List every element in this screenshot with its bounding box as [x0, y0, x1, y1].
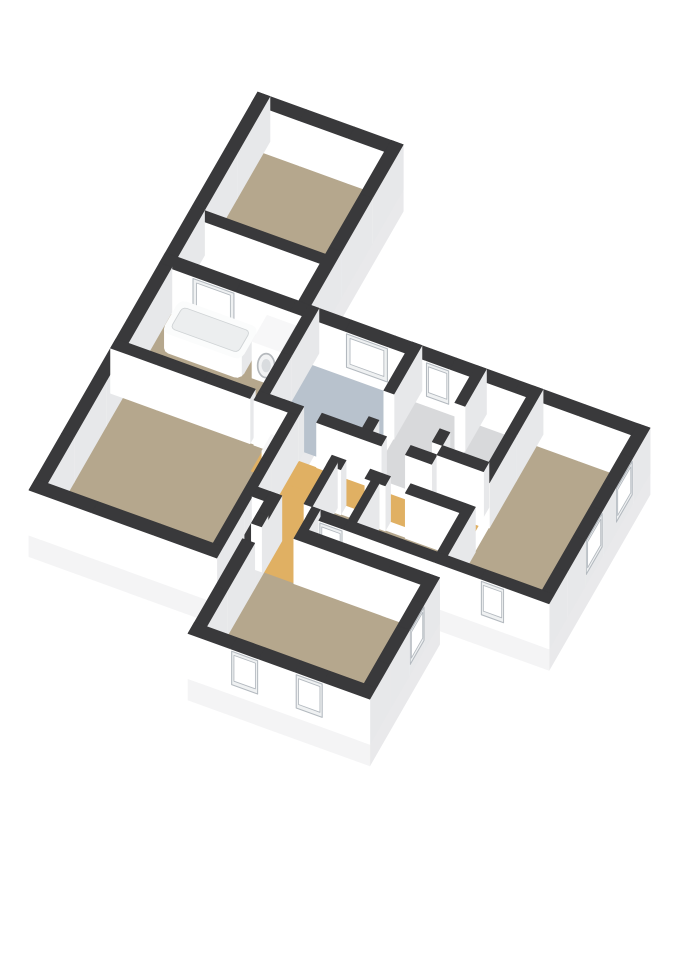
- floorplan-3d-render: [0, 0, 679, 960]
- bathtub: [241, 354, 244, 376]
- floorplan-figure: [0, 0, 679, 960]
- bathtub: [166, 332, 169, 353]
- wall: [384, 390, 394, 439]
- page-background: [0, 0, 679, 960]
- bathtub: [238, 357, 242, 378]
- washer-door-glass: [262, 359, 271, 372]
- bathtub: [234, 358, 238, 378]
- wall: [455, 403, 465, 452]
